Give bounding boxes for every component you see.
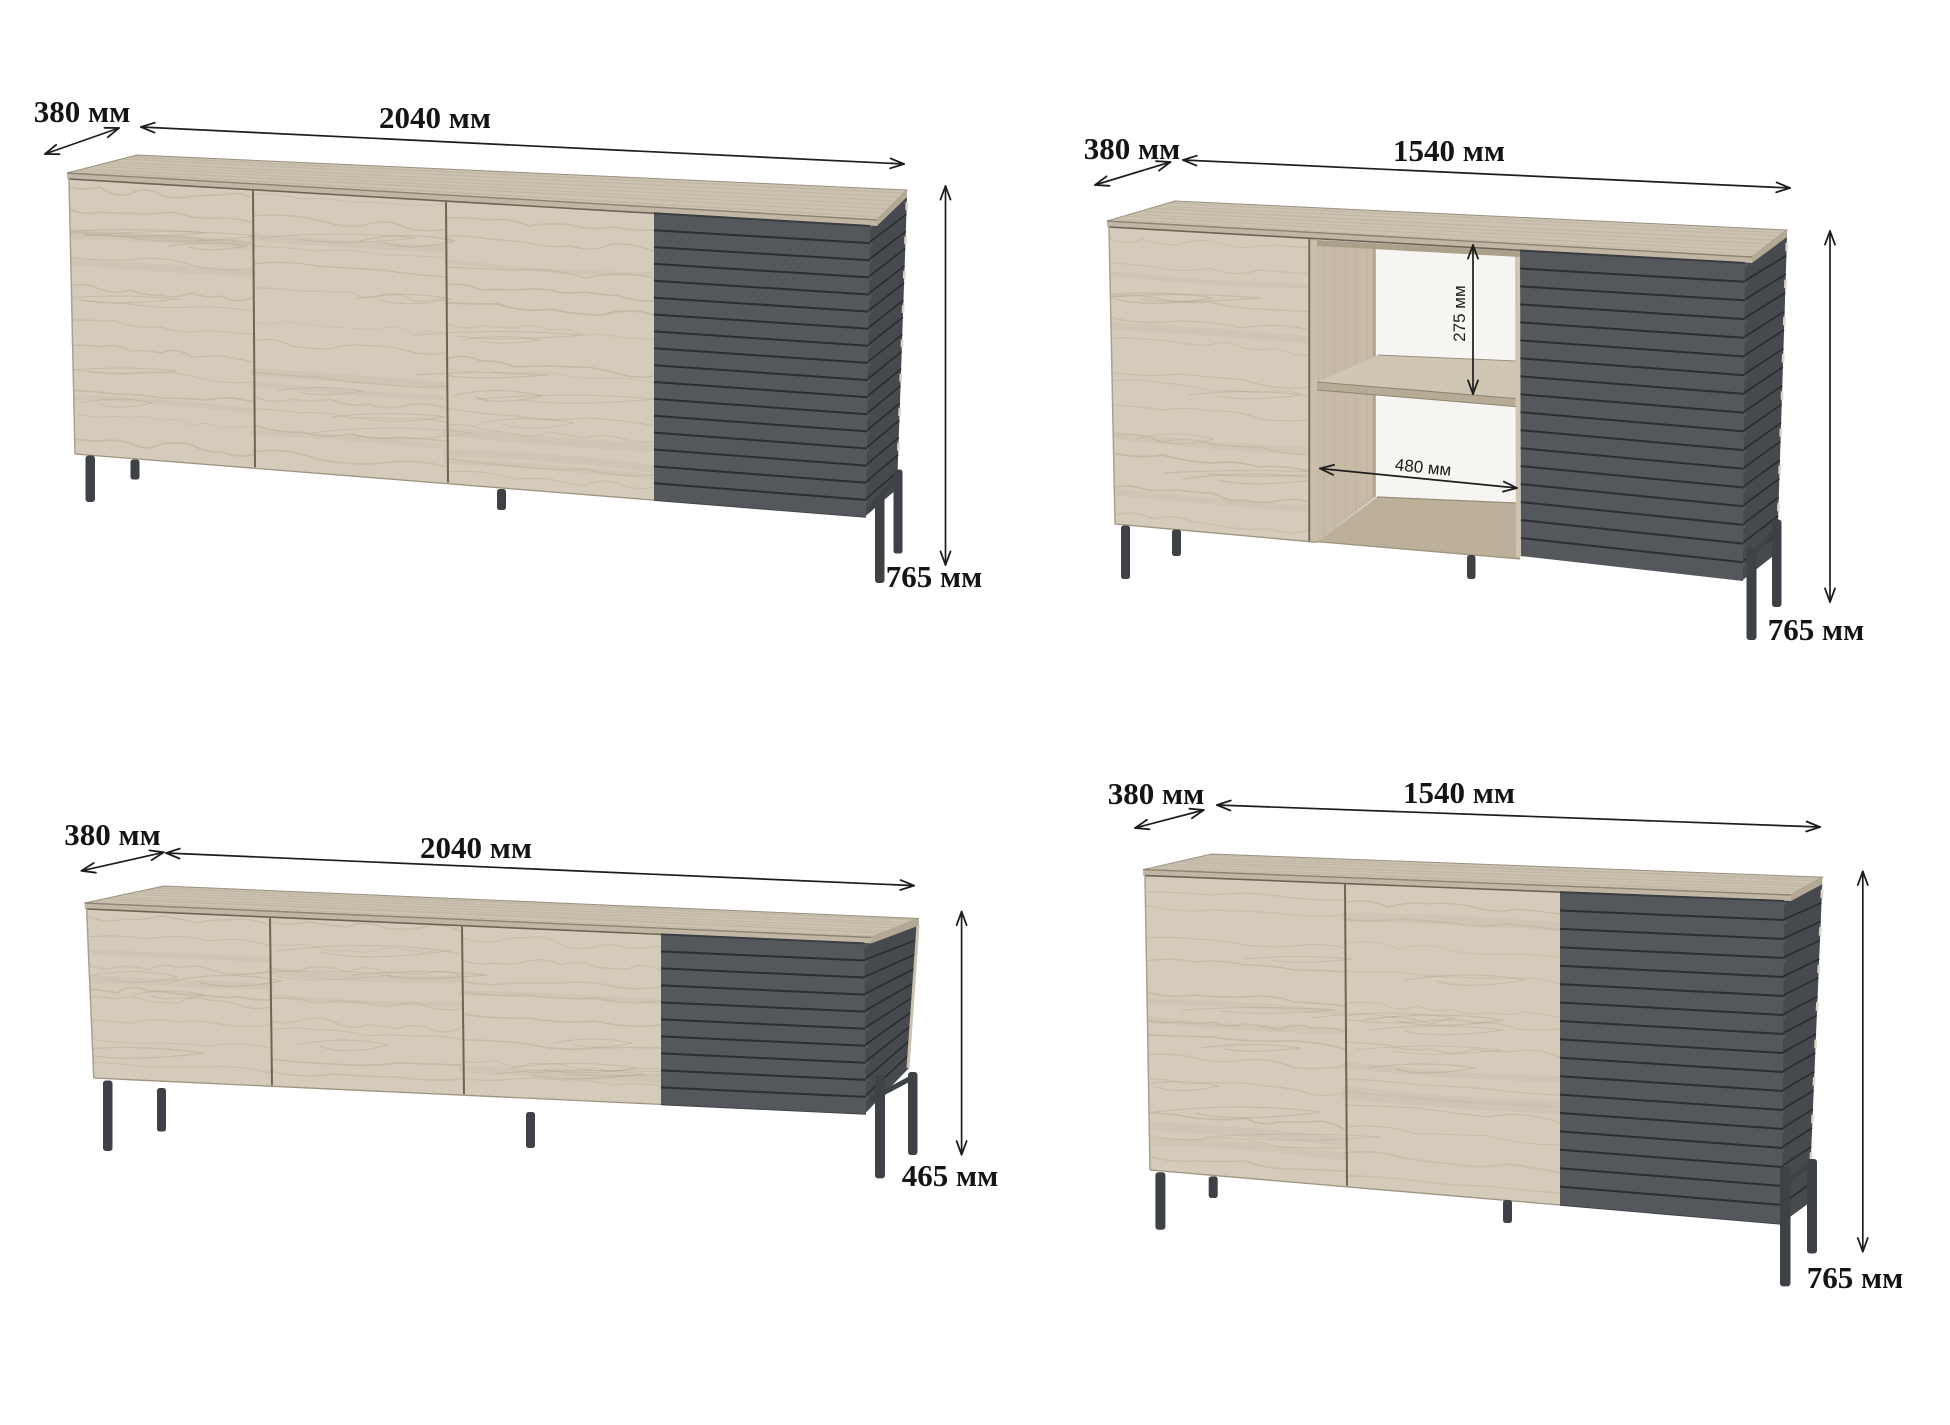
svg-text:2040 мм: 2040 мм <box>379 100 491 135</box>
svg-text:765 мм: 765 мм <box>886 559 982 594</box>
svg-text:765 мм: 765 мм <box>1807 1260 1903 1295</box>
svg-text:380 мм: 380 мм <box>1084 131 1180 166</box>
svg-text:2040 мм: 2040 мм <box>420 830 532 865</box>
svg-text:465 мм: 465 мм <box>902 1158 998 1193</box>
svg-text:1540 мм: 1540 мм <box>1393 133 1505 168</box>
svg-text:380 мм: 380 мм <box>34 94 130 129</box>
svg-text:1540 мм: 1540 мм <box>1403 775 1515 810</box>
svg-text:765 мм: 765 мм <box>1768 612 1864 647</box>
svg-text:380 мм: 380 мм <box>1108 776 1204 811</box>
svg-text:380 мм: 380 мм <box>64 817 160 852</box>
svg-text:275 мм: 275 мм <box>1450 285 1469 341</box>
